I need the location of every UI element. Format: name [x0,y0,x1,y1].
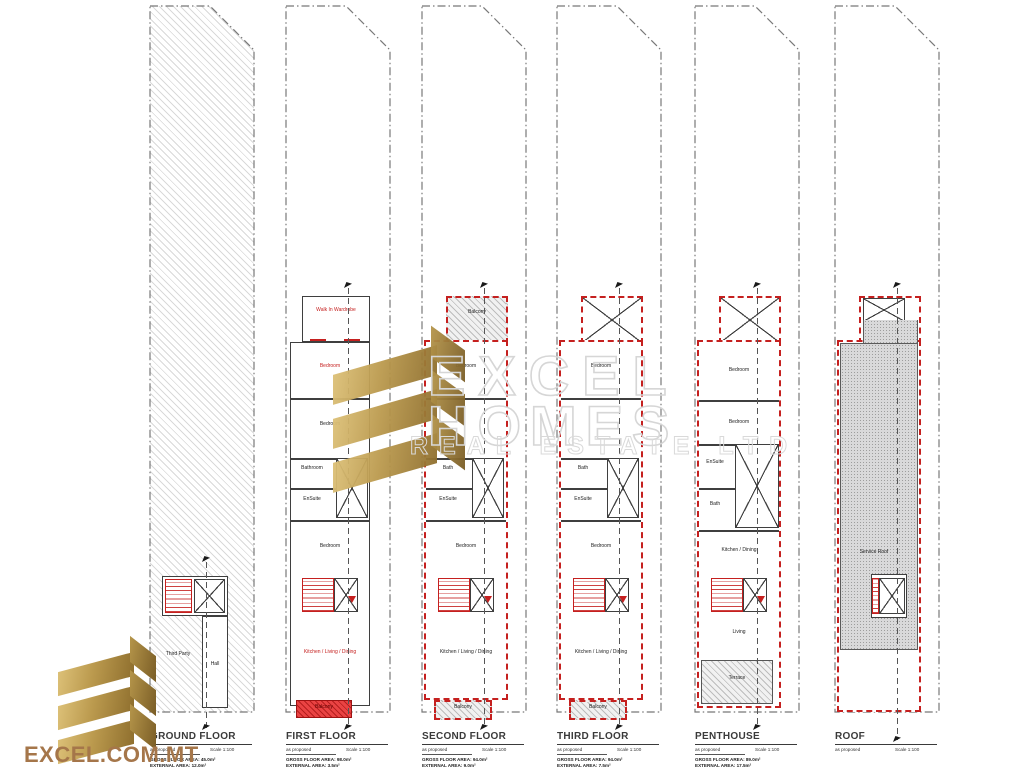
room-label: Bedroom [701,420,777,426]
room-label: Kitchen / Living / Dining [428,650,504,656]
plan-sheet: Hall Third Party GROUND FLOOR as propose… [0,0,1024,782]
entry-arrow-icon [348,596,356,603]
stairs [711,578,743,612]
external-area: EXTERNAL AREA: 9.0m² [422,763,476,768]
lift-shaft [194,579,225,613]
excel-homes-logo-icon [58,648,168,748]
wall [699,400,779,402]
stairs [438,578,470,612]
section-line [757,288,758,728]
gross-area: GROSS FLOOR AREA: 94.0m² [557,757,622,762]
plan-scale: Scale 1:100 [482,747,506,752]
watermark-text: REAL ESTATE LTD [410,432,798,461]
room-label: Bathroom [290,466,334,472]
entry-arrow-icon [619,596,627,603]
terrace [701,660,773,704]
plan-note: as proposed [835,747,860,752]
plan-title: THIRD FLOOR [557,731,629,742]
room-label: Balcony [448,310,506,316]
room-label: Bedroom [701,368,777,374]
wall [290,488,336,490]
lift-shaft [605,578,629,612]
room-label: Walk In Wardrobe [304,308,368,314]
title-rule [695,744,797,745]
note-rule [695,754,745,755]
plan-scale: Scale 1:100 [617,747,641,752]
room-label: EnSuite [561,497,605,503]
stairs [872,578,879,614]
plan-scale: Scale 1:100 [210,747,234,752]
title-rule [286,744,388,745]
gross-area: GROSS FLOOR AREA: 98.0m² [286,757,351,762]
wall [561,488,607,490]
stairs [573,578,605,612]
plan-title: FIRST FLOOR [286,731,356,742]
entry-arrow-icon [484,596,492,603]
plan-title: PENTHOUSE [695,731,760,742]
plan-note: as proposed [286,747,311,752]
external-area: EXTERNAL AREA: 3.5m² [286,763,340,768]
wall [561,520,641,522]
plan-scale: Scale 1:100 [346,747,370,752]
room-label: Kitchen / Dining [701,548,777,554]
section-marker-icon [480,724,488,730]
plan-note: as proposed [422,747,447,752]
room-label: Balcony [298,705,350,711]
stairs [165,579,192,613]
lift-shaft [334,578,358,612]
plan-note: as proposed [557,747,582,752]
room-label: Kitchen / Living / Dining [563,650,639,656]
room [302,296,370,342]
room-label: Hall [200,662,230,668]
room-label: EnSuite [426,497,470,503]
section-marker-icon [893,736,901,742]
room-label: Balcony [571,705,625,711]
service-roof-deck [863,320,918,344]
red-wall-mark [344,339,360,341]
title-rule [835,744,937,745]
section-line [206,562,207,728]
red-wall-mark [310,339,326,341]
stairs [302,578,334,612]
room-label: Bedroom [428,544,504,550]
external-area: EXTERNAL AREA: 7.5m² [557,763,611,768]
lift-shaft [607,458,639,518]
room-label: Bath [697,502,733,508]
wall [290,458,336,460]
gross-area: GROSS FLOOR AREA: 94.0m² [422,757,487,762]
entry-arrow-icon [757,596,765,603]
room-label: Kitchen / Living / Dining [292,650,368,656]
wall [699,488,735,490]
floor-plan-roof: Service Roof ROOF as proposed Scale 1:10… [833,0,941,782]
section-marker-icon [344,724,352,730]
stair-bulkhead-roof [863,298,905,322]
plan-note: as proposed [695,747,720,752]
room-label: Bedroom [292,544,368,550]
wall [699,530,779,532]
gross-area: GROSS FLOOR AREA: 89.0m² [695,757,760,762]
room-label: Living [701,630,777,636]
lift-shaft [472,458,504,518]
room-label: Balcony [436,705,490,711]
note-rule [422,754,472,755]
note-rule [557,754,607,755]
plan-scale: Scale 1:100 [895,747,919,752]
balcony [446,296,508,344]
section-marker-icon [202,724,210,730]
external-area: EXTERNAL AREA: 17.5m² [695,763,751,768]
section-marker-icon [753,724,761,730]
note-rule [286,754,336,755]
lift-shaft [470,578,494,612]
wall [290,520,370,522]
title-rule [422,744,524,745]
plan-title: ROOF [835,731,865,742]
lift-shaft [879,578,905,614]
title-rule [557,744,659,745]
plan-scale: Scale 1:100 [755,747,779,752]
floor-plan-penthouse: Bedroom Bedroom EnSuite Bath Kitchen / D… [693,0,801,782]
room-label: EnSuite [290,497,334,503]
section-marker-icon [615,724,623,730]
void [581,296,643,344]
void [719,296,781,344]
plan-title: SECOND FLOOR [422,731,506,742]
wall [426,520,506,522]
room-label: Bedroom [563,544,639,550]
room-label: Bath [561,466,605,472]
section-line [897,288,898,740]
room-label: Terrace [703,676,771,682]
brand-site-text: EXCEL.COM.MT [24,742,199,768]
lift-shaft [743,578,767,612]
